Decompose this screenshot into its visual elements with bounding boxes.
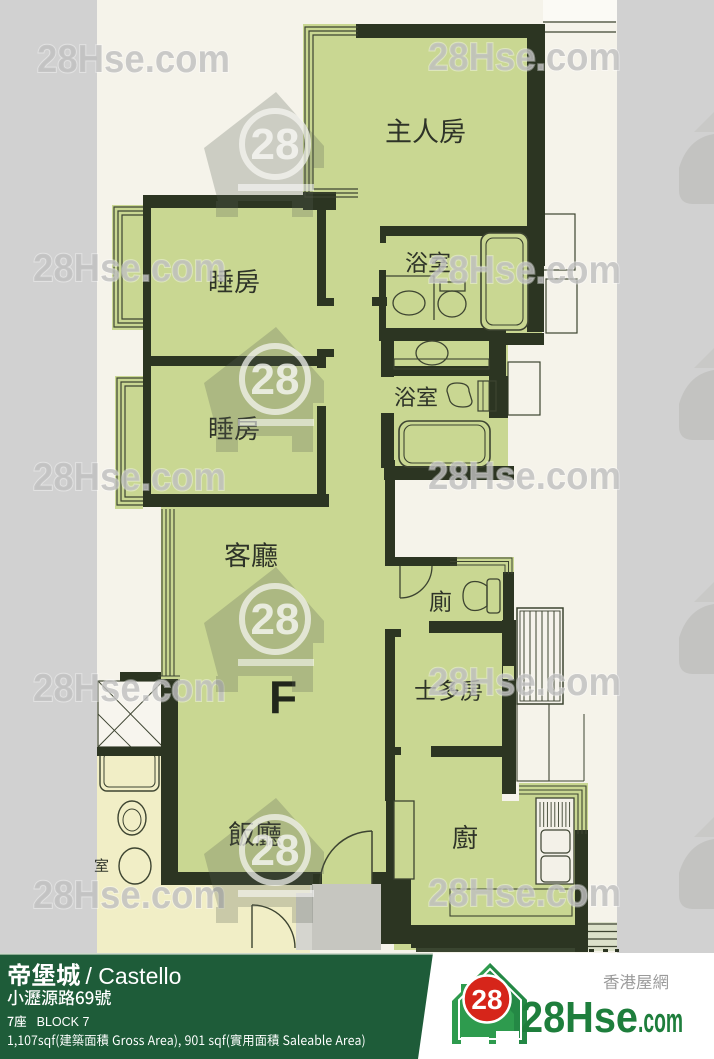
svg-text:28: 28 [471, 984, 502, 1015]
svg-text:28Hse.com: 28Hse.com [428, 36, 621, 79]
svg-text:28Hse.com: 28Hse.com [428, 455, 621, 498]
svg-text:28Hse.com: 28Hse.com [428, 249, 621, 292]
svg-text:28: 28 [251, 355, 300, 404]
svg-text:28Hse.com: 28Hse.com [33, 874, 226, 917]
svg-text:28: 28 [251, 595, 300, 644]
svg-text:28Hse.com: 28Hse.com [33, 456, 226, 499]
svg-text:/ Castello: / Castello [86, 963, 182, 989]
svg-text:28Hse.com: 28Hse.com [33, 667, 226, 710]
svg-text:28Hse.com: 28Hse.com [37, 38, 230, 81]
svg-text:28Hse: 28Hse [521, 993, 638, 1042]
svg-text:28Hse.com: 28Hse.com [428, 872, 621, 915]
svg-text:BLOCK 7: BLOCK 7 [37, 1015, 90, 1029]
svg-text:28: 28 [251, 120, 300, 169]
svg-text:.com: .com [638, 1002, 683, 1040]
svg-text:28Hse.com: 28Hse.com [33, 247, 226, 290]
svg-text:28Hse.com: 28Hse.com [428, 661, 621, 704]
svg-text:28: 28 [251, 826, 300, 875]
